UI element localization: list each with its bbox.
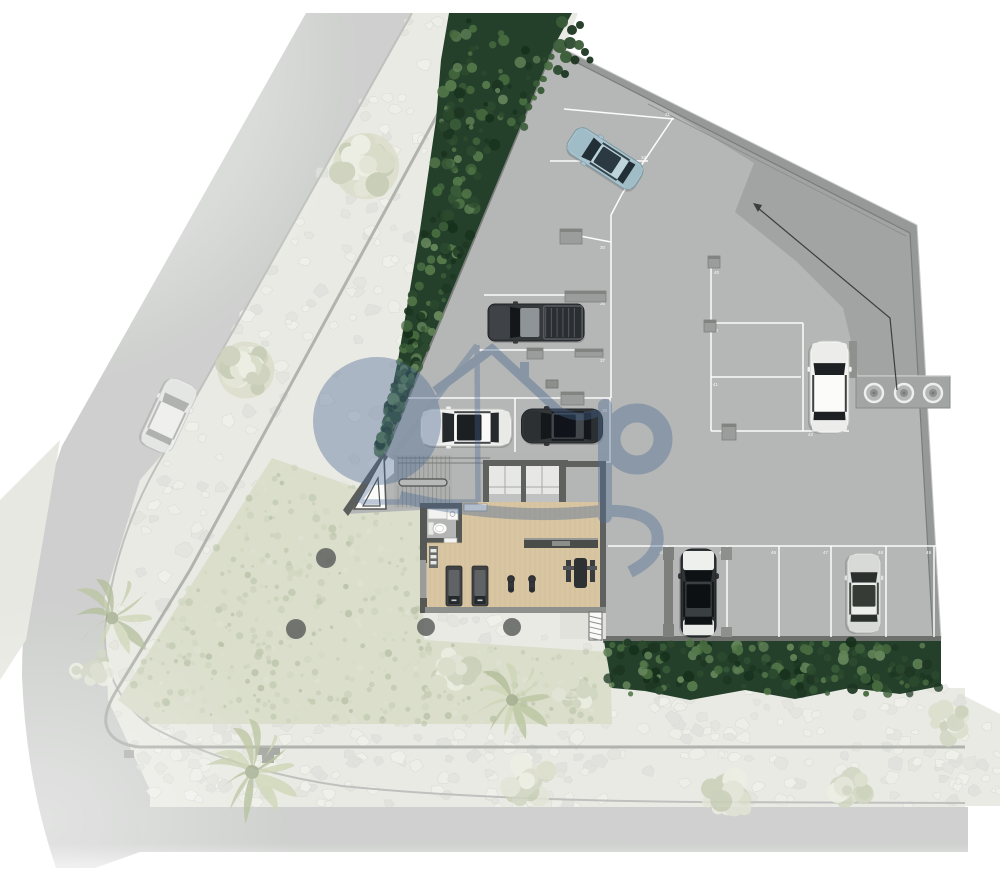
svg-text:37: 37 [600, 358, 606, 363]
svg-text:31: 31 [665, 112, 671, 117]
svg-text:48: 48 [878, 550, 884, 555]
svg-text:30: 30 [600, 245, 606, 250]
svg-text:49: 49 [926, 550, 932, 555]
svg-text:47: 47 [823, 550, 829, 555]
svg-text:41: 41 [713, 382, 719, 387]
svg-text:46: 46 [771, 550, 777, 555]
svg-text:40: 40 [714, 270, 720, 275]
svg-text:42: 42 [808, 432, 814, 437]
svg-text:32: 32 [641, 155, 647, 160]
